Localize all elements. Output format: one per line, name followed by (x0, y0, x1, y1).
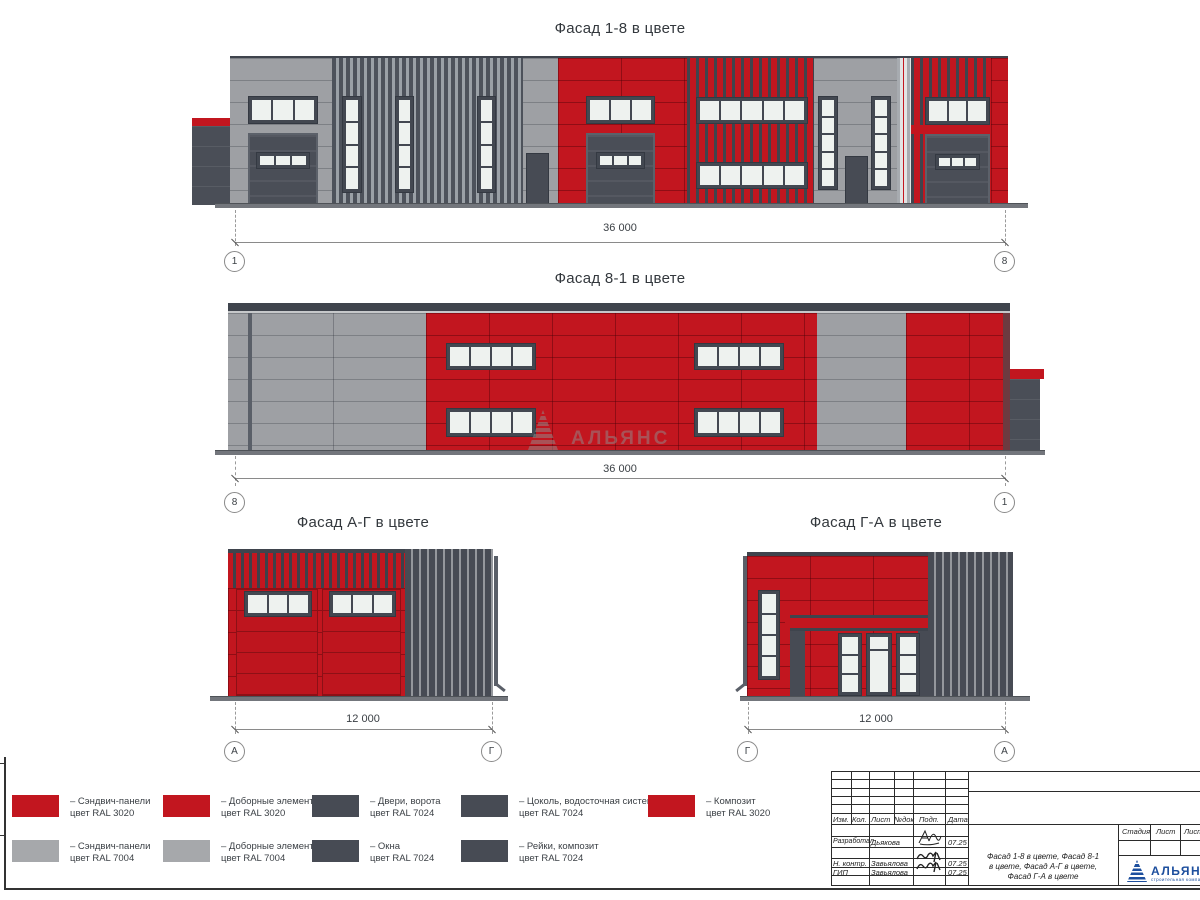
stamp-date: 07.25 (948, 838, 967, 847)
stamp-line (1118, 855, 1200, 856)
stamp-line (831, 847, 968, 848)
stamp-role: Н. контр. (833, 859, 867, 868)
stamp-doc-title: Фасад 1-8 в цвете, Фасад 8-1 в цвете, Фа… (970, 852, 1116, 882)
stamp-line (968, 791, 1200, 792)
stamp-line (945, 771, 946, 885)
drawing-sheet: Фасад 1-8 в цвете (0, 0, 1200, 900)
stamp-date: 07.25 (948, 859, 967, 868)
stamp-role: ГИП (833, 868, 848, 877)
stamp-line (831, 885, 1200, 886)
company-logo-text: АЛЬЯНС (1151, 864, 1200, 878)
stamp-header-izm: Изм. (833, 815, 849, 824)
stamp-line (913, 771, 914, 885)
stamp-line (831, 824, 1200, 825)
stamp-line (831, 771, 832, 885)
path (917, 862, 940, 872)
stamp-header-data: Дата (948, 815, 968, 824)
company-logo-icon (1127, 860, 1147, 882)
stamp-name: Завьялова (871, 859, 908, 868)
stamp-line (1150, 824, 1151, 855)
title-block: Изм. Кол. Лист №док Подп. Дата Разработа… (0, 0, 1200, 900)
stamp-line (869, 771, 870, 885)
company-logo-subtitle: строительная компания (1151, 877, 1200, 882)
stamp-header-podp: Подп. (919, 815, 939, 824)
stamp-line (1118, 840, 1200, 841)
stamp-name: Завьялова (871, 868, 908, 877)
span: Фасад 1-8 в цвете, Фасад 8-1 (987, 852, 1099, 861)
stamp-stage: Стадия (1122, 827, 1150, 836)
stamp-line (1180, 824, 1181, 855)
stamp-sheet: Лист (1156, 827, 1175, 836)
stamp-line (831, 771, 1200, 772)
stamp-line (968, 771, 969, 885)
stamp-header-kol: Кол. (852, 815, 867, 824)
stamp-header-ndok: №док (894, 815, 914, 824)
stamp-sheets: Листов (1184, 827, 1200, 836)
stamp-role: Разработал (833, 838, 874, 845)
span: Фасад Г-А в цвете (1008, 872, 1079, 881)
stamp-line (1118, 824, 1119, 885)
stamp-line (831, 836, 968, 837)
path (919, 831, 941, 845)
signature (915, 860, 943, 874)
signature (915, 828, 943, 846)
span: в цвете, Фасад А-Г в цвете, (989, 862, 1097, 871)
stamp-name: Дьякова (871, 838, 900, 847)
stamp-header-list: Лист (871, 815, 890, 824)
stamp-date: 07.25 (948, 868, 967, 877)
